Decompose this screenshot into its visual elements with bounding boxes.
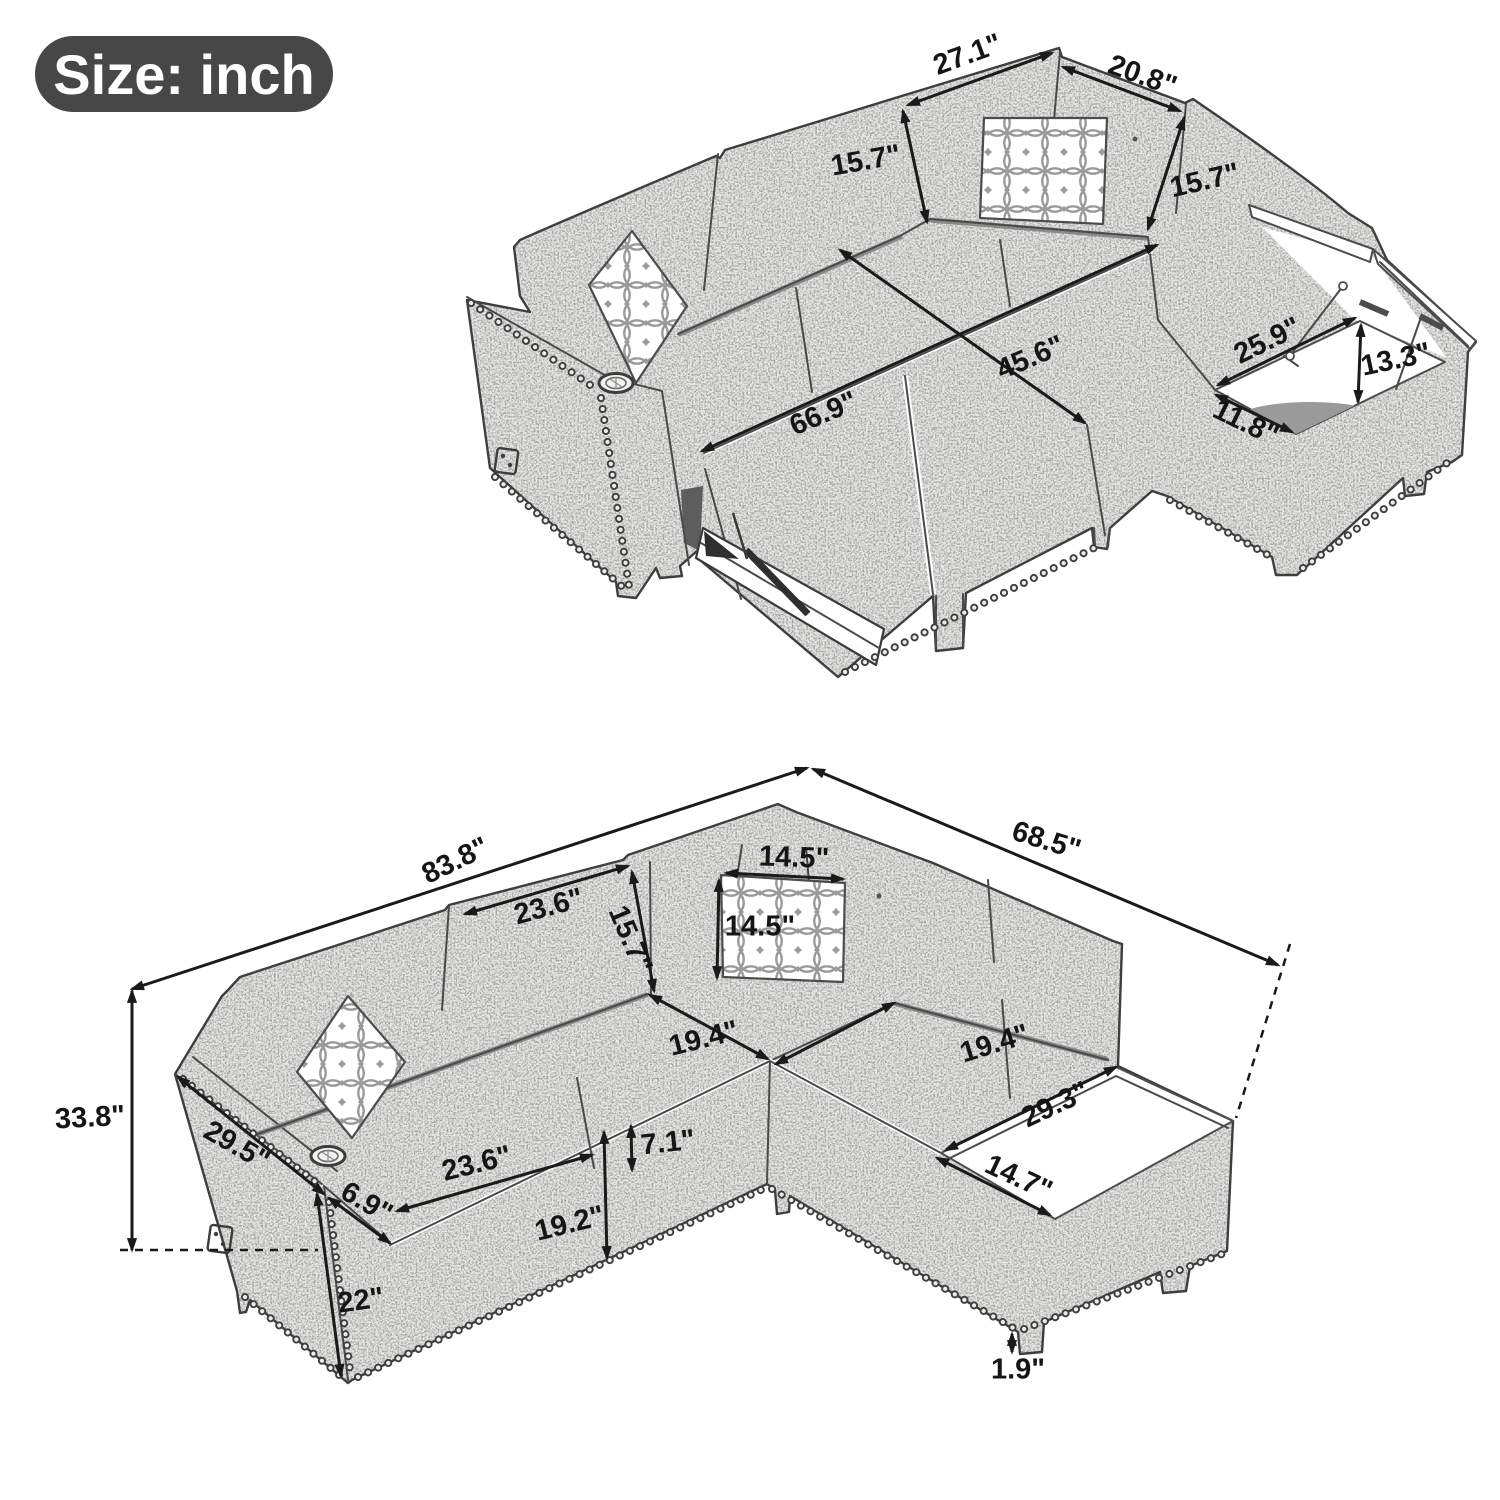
svg-text:14.5": 14.5" [725, 911, 795, 943]
svg-text:1.9": 1.9" [991, 1354, 1045, 1386]
svg-text:33.8": 33.8" [54, 1100, 126, 1136]
svg-text:22": 22" [336, 1282, 386, 1320]
svg-text:7.1": 7.1" [639, 1124, 696, 1161]
svg-text:Size: inch: Size: inch [53, 43, 314, 106]
svg-text:14.5": 14.5" [758, 840, 829, 874]
